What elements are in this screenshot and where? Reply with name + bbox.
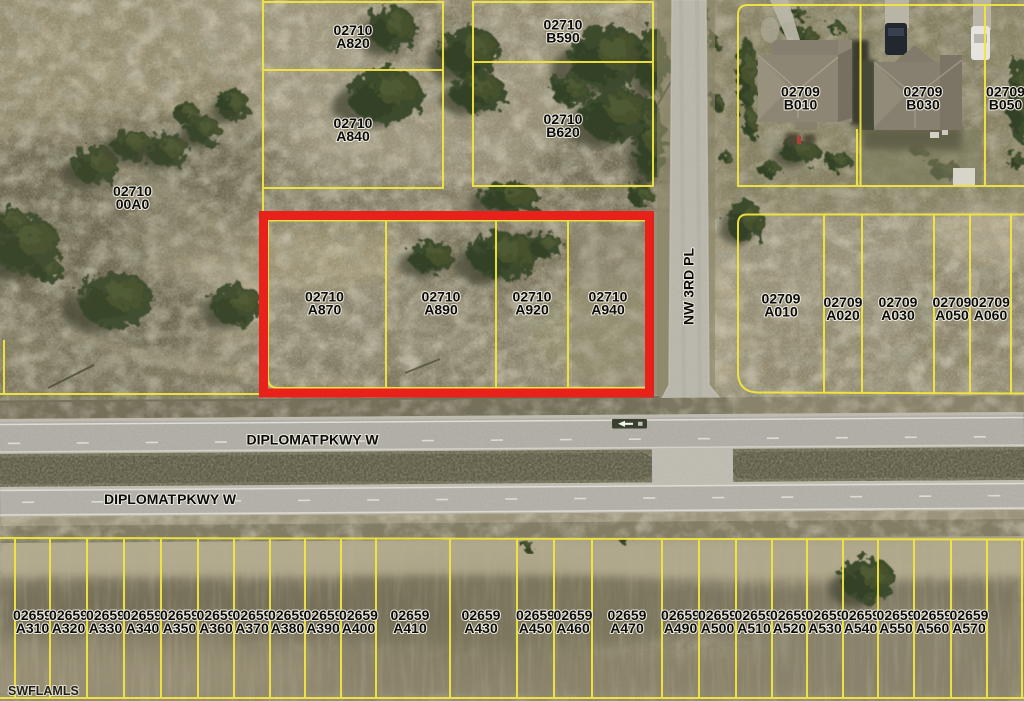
svg-text:A550: A550	[879, 620, 913, 636]
svg-text:B050: B050	[989, 97, 1023, 113]
svg-text:A520: A520	[773, 620, 807, 636]
svg-text:A370: A370	[235, 620, 269, 636]
svg-text:A920: A920	[515, 302, 549, 318]
svg-text:A570: A570	[952, 620, 986, 636]
svg-text:A870: A870	[308, 302, 342, 318]
svg-text:A430: A430	[464, 620, 498, 636]
svg-text:A010: A010	[764, 304, 798, 320]
svg-text:A330: A330	[89, 620, 123, 636]
svg-text:A400: A400	[342, 620, 376, 636]
svg-text:A310: A310	[16, 620, 50, 636]
svg-text:A510: A510	[737, 620, 771, 636]
svg-text:A320: A320	[52, 620, 86, 636]
svg-text:A940: A940	[591, 302, 625, 318]
svg-text:A820: A820	[336, 35, 370, 51]
svg-text:A340: A340	[126, 620, 160, 636]
svg-text:DIPLOMAT PKWY W: DIPLOMAT PKWY W	[104, 491, 237, 507]
svg-text:A410: A410	[393, 620, 427, 636]
svg-text:A530: A530	[808, 620, 842, 636]
svg-text:A020: A020	[826, 307, 860, 323]
svg-text:A450: A450	[519, 620, 553, 636]
svg-text:B010: B010	[784, 97, 818, 113]
svg-text:A460: A460	[556, 620, 590, 636]
svg-text:A360: A360	[199, 620, 233, 636]
svg-text:A380: A380	[271, 620, 305, 636]
svg-text:DIPLOMAT PKWY W: DIPLOMAT PKWY W	[246, 432, 379, 448]
svg-text:A060: A060	[974, 307, 1008, 323]
svg-text:B590: B590	[546, 30, 580, 46]
svg-text:B620: B620	[546, 124, 580, 140]
svg-text:A490: A490	[664, 620, 698, 636]
svg-text:NW 3RD PL: NW 3RD PL	[681, 248, 697, 325]
svg-text:A390: A390	[306, 620, 340, 636]
svg-text:A560: A560	[916, 620, 950, 636]
svg-text:A500: A500	[701, 620, 735, 636]
svg-text:A030: A030	[881, 307, 915, 323]
svg-text:A350: A350	[163, 620, 197, 636]
svg-text:A470: A470	[610, 620, 644, 636]
svg-text:A050: A050	[935, 307, 969, 323]
svg-text:B030: B030	[906, 97, 940, 113]
svg-text:A540: A540	[844, 620, 878, 636]
svg-text:A840: A840	[336, 128, 370, 144]
svg-text:00A0: 00A0	[116, 196, 150, 212]
svg-text:A890: A890	[424, 302, 458, 318]
svg-text:SWFLAMLS: SWFLAMLS	[8, 684, 79, 698]
